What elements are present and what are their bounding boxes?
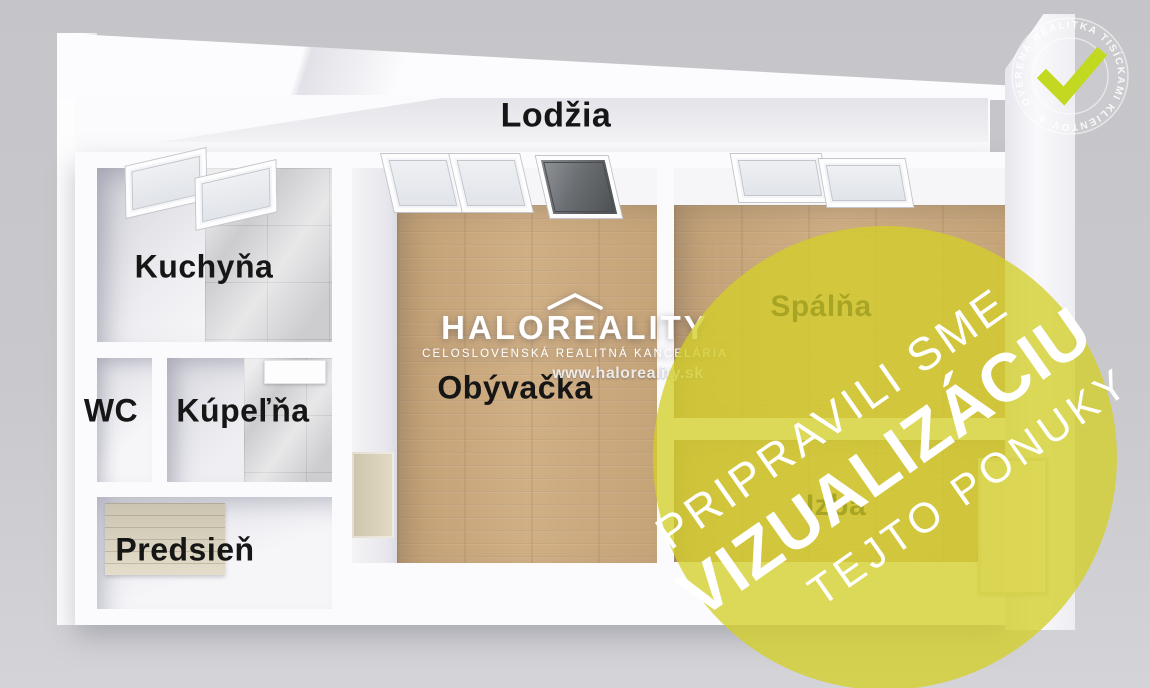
bathroom-sink	[264, 360, 326, 384]
roof-icon	[546, 292, 604, 310]
living-door	[352, 452, 394, 538]
badge-outer-ring	[1012, 18, 1128, 134]
living-window-2	[449, 154, 532, 212]
outer-wall-top	[57, 33, 1005, 100]
verified-badge: OVERENÁ REALITKA TISÍCKAMI KLIENTOV ★	[1008, 14, 1132, 138]
room-label-predsien: Predsieň	[115, 532, 254, 569]
room-label-kuchyna: Kuchyňa	[135, 249, 274, 286]
room-label-wc: WC	[84, 393, 138, 430]
floorplan-visualization: Lodžia Kuchyňa WC Kú	[0, 0, 1150, 688]
room-label-kupelna: Kúpeľňa	[176, 393, 309, 430]
bedroom-window-2	[819, 159, 913, 207]
bedroom-window-1	[731, 154, 829, 202]
room-label-lodzia: Lodžia	[501, 97, 612, 136]
living-dark-panel	[536, 156, 622, 218]
brand-name: HALOREALITY	[422, 311, 728, 344]
